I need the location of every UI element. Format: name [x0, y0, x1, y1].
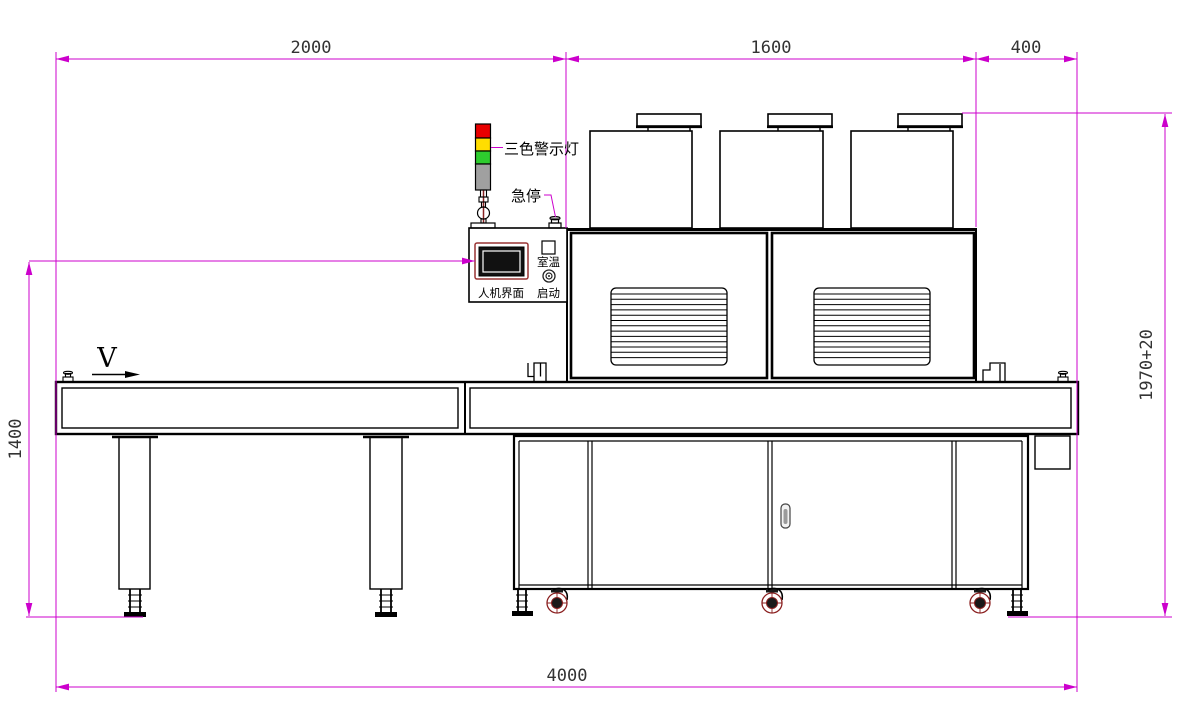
belt-bracket-right [983, 363, 1005, 382]
machine-cabinet [514, 436, 1070, 589]
warning-light-tower [471, 124, 495, 228]
label-direction-v: V [96, 343, 117, 374]
oven-body [566, 228, 977, 382]
machine-linework [56, 114, 1078, 617]
emergency-stop-button [549, 217, 561, 228]
table-leg-right [363, 437, 409, 617]
caster-wheel-left [547, 588, 567, 613]
warning-light-red-segment [476, 124, 491, 138]
belt-bolt-right [1058, 371, 1068, 382]
dim-text-2000: 2000 [291, 38, 332, 58]
label-emergency-stop: 急停 [511, 187, 541, 205]
dim-text-1970: 1970+20 [1137, 329, 1157, 401]
belt-bracket-left [528, 363, 546, 382]
conveyor-table [56, 382, 1078, 434]
leveling-foot-cabinet-right [1007, 589, 1028, 616]
door-handle [781, 504, 790, 528]
louver-grille-right [814, 288, 930, 365]
cad-drawing-canvas: 2000 1600 400 4000 1400 1970+20 三色警示灯 急停… [0, 0, 1185, 713]
exhaust-box-1 [590, 114, 702, 228]
label-hmi: 人机界面 [478, 286, 524, 300]
leveling-foot-cabinet-left [512, 589, 533, 616]
exhaust-box-2 [720, 114, 833, 228]
room-temp-indicator [542, 241, 555, 254]
dim-text-1600: 1600 [751, 38, 792, 58]
belt-bolt-left [63, 371, 73, 382]
caster-wheel-right [970, 588, 990, 613]
warning-light-yellow-segment [476, 138, 491, 151]
table-leg-left [112, 437, 158, 617]
label-start: 启动 [537, 286, 560, 300]
caster-wheel-middle [762, 588, 782, 613]
leader-emergency-stop [544, 195, 556, 217]
label-room-temperature: 室温 [537, 255, 560, 269]
side-junction-box [1035, 436, 1070, 469]
warning-light-green-segment [476, 151, 491, 164]
louver-grille-left [611, 288, 727, 365]
label-tricolor-warning-light: 三色警示灯 [504, 140, 579, 158]
exhaust-box-3 [851, 114, 963, 228]
dim-text-1400: 1400 [6, 419, 26, 460]
dim-text-4000: 4000 [547, 666, 588, 686]
warning-light-base-segment [476, 164, 491, 190]
hmi-screen [475, 243, 528, 279]
dim-text-400: 400 [1011, 38, 1042, 58]
